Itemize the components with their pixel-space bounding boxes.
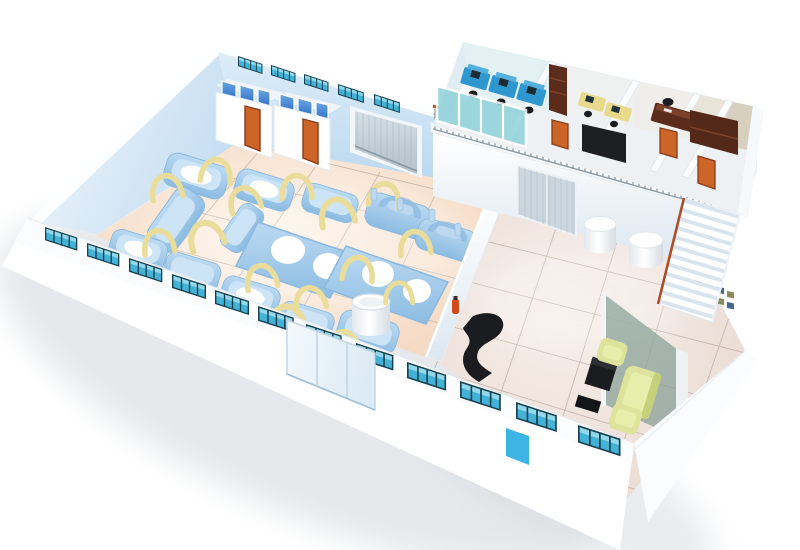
office-door-3 xyxy=(698,156,715,189)
cylinder-1 xyxy=(584,217,616,254)
stall-door-2 xyxy=(303,119,318,164)
office-door-2 xyxy=(660,128,677,158)
bookshelf xyxy=(549,64,567,116)
isometric-scene: 3D isometric cutaway floor plan of an in… xyxy=(0,0,800,550)
office-door-1 xyxy=(552,120,568,149)
stall-door-1 xyxy=(245,106,260,151)
floor-plan-illustration: 3D isometric cutaway floor plan of an in… xyxy=(0,0,800,550)
cylinder-2 xyxy=(629,232,663,268)
